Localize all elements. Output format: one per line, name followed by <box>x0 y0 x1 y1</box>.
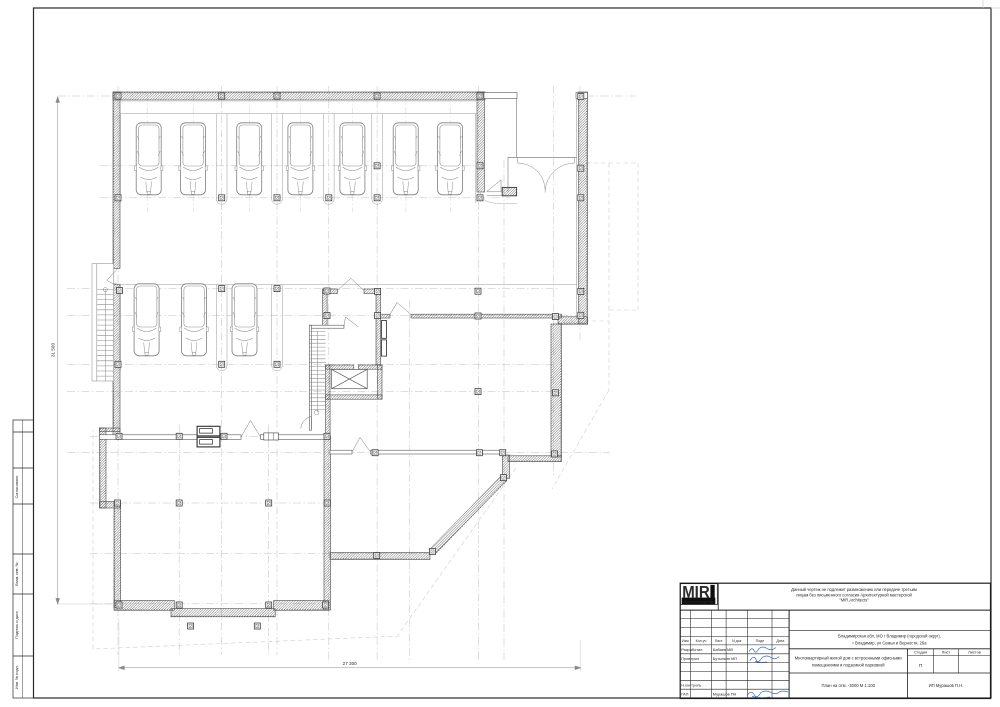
svg-text:Взам. инв. №: Взам. инв. № <box>15 562 19 586</box>
svg-text:Владимирская обл, МО г Владими: Владимирская обл, МО г Владимир (городск… <box>838 634 941 639</box>
svg-text:ГАП: ГАП <box>681 692 688 697</box>
svg-text:Кол.уч: Кол.уч <box>696 639 707 643</box>
svg-text:Данный чертеж не подлежит разм: Данный чертеж не подлежит размножению ил… <box>791 587 917 592</box>
svg-text:П: П <box>919 663 922 668</box>
svg-text:Лист: Лист <box>715 639 723 643</box>
svg-text:Бутылкин МП: Бутылкин МП <box>713 656 738 661</box>
svg-text:27 300: 27 300 <box>343 661 357 666</box>
svg-text:Листов: Листов <box>968 650 981 655</box>
svg-text:Н.контроль: Н.контроль <box>681 683 701 688</box>
svg-text:Мурашов ПН: Мурашов ПН <box>713 692 737 697</box>
svg-text:Многоквартирный жилой дом с вс: Многоквартирный жилой дом с встроенными … <box>795 656 902 661</box>
svg-text:План на отм. -3000 М 1:100: План на отм. -3000 М 1:100 <box>821 683 875 688</box>
svg-text:Разработал: Разработал <box>681 647 702 652</box>
svg-text:Инв. № подл.: Инв. № подл. <box>15 665 19 689</box>
svg-text:"MIR.Architects": "MIR.Architects" <box>839 598 869 603</box>
svg-text:31 500: 31 500 <box>51 343 56 357</box>
svg-text:Изм: Изм <box>682 639 689 643</box>
svg-text:помещениями и подземной парков: помещениями и подземной парковкой <box>812 663 885 668</box>
svg-text:лицам без письменного согласия: лицам без письменного согласия Архитекту… <box>796 592 912 597</box>
svg-text:г Владимир, ул Семьи и Верност: г Владимир, ул Семьи и Верности, 26а <box>852 640 927 645</box>
svg-text:Проверил: Проверил <box>681 656 699 661</box>
svg-text:Архитектурная: Архитектурная <box>684 600 714 604</box>
svg-text:Подпись и дата: Подпись и дата <box>15 610 19 638</box>
svg-text:ИП Мурашов П.Н.: ИП Мурашов П.Н. <box>929 683 964 688</box>
svg-text:Лист: Лист <box>942 650 951 655</box>
svg-text:Согласовано: Согласовано <box>15 476 19 499</box>
svg-text:Стадия: Стадия <box>914 650 927 655</box>
svg-text:Дата: Дата <box>776 639 784 643</box>
svg-text:Бабаев МВ: Бабаев МВ <box>713 647 734 652</box>
svg-text:Подп: Подп <box>756 639 765 643</box>
svg-text:N док: N док <box>732 639 742 643</box>
